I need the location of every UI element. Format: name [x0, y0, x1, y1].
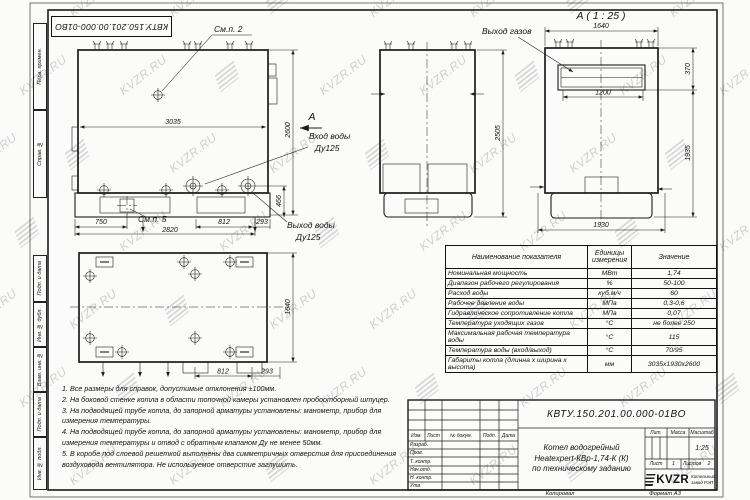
section-arrow-label: А — [307, 111, 315, 123]
outlet-label: Ду125 — [295, 232, 321, 242]
table-row: Температура уходящих газов°Сне более 250 — [446, 319, 717, 329]
dimension-label: 2820 — [161, 227, 178, 234]
dimension-label: 812 — [218, 219, 230, 226]
tb-sheet-value: 1 — [666, 459, 681, 469]
margin-box-perv-primen: Перв. примен. — [33, 23, 47, 110]
inlet-label: Ду125 — [314, 143, 340, 153]
scale-value: 1:25 — [689, 437, 715, 459]
margin-box-podp-data-1: Подп. и дата — [33, 255, 47, 302]
view-title: А ( 1 : 25 ) — [575, 10, 625, 22]
copied-label: Копировал — [520, 491, 600, 497]
product-name: Котел водогрейный Heatexpert-КВр-1,74-К … — [520, 429, 643, 489]
tb-mass-label: Масса — [667, 428, 689, 437]
tb-sheets-label: Листов — [681, 459, 703, 469]
callout-label: См.п. 5 — [138, 214, 167, 224]
margin-box-sprav-no: Справ. № — [33, 110, 47, 198]
plan-view: 1640 812 293 — [70, 253, 297, 379]
tb-row-prov: Пров. — [410, 449, 442, 457]
tb-row-nkontr: Н. контр. — [410, 474, 442, 482]
margin-box-inv-dubl: Инв. № дубл. — [33, 302, 47, 347]
dimension-label: 3035 — [165, 119, 181, 126]
margin-box-podp-data-2: Подп. и дата — [33, 392, 47, 437]
inlet-label: Вход воды — [309, 131, 351, 141]
tb-col-izm: Изм. — [408, 430, 425, 441]
company-cell: KVZR Котельный завод РЭП — [645, 469, 715, 490]
notes-block: 1. Все размеры для справок, допустимые о… — [62, 384, 406, 490]
tb-col-dokum: № докум. — [442, 430, 480, 441]
spec-col-value: Значение — [632, 246, 717, 269]
kvzr-logo-icon — [645, 474, 656, 486]
tb-row-nachotd: Нач.отд. — [410, 466, 442, 474]
tb-sheet-label: Лист — [646, 459, 666, 469]
tb-sheets-value: 2 — [703, 459, 715, 469]
callout-label: См.п. 2 — [214, 24, 243, 34]
dimension-label: 1640 — [593, 23, 609, 30]
dimension-label: 466 — [276, 195, 283, 207]
tb-lit-label: Лит. — [645, 428, 667, 437]
dimension-label: 370 — [685, 63, 692, 75]
dimension-label: 2505 — [495, 125, 502, 142]
dimension-label: 2600 — [285, 122, 292, 139]
table-row: Габариты котла (длинна х ширина х высота… — [446, 356, 717, 373]
tb-scale-label: Масштаб — [689, 428, 715, 437]
doc-number: КВТУ.150.201.00.000-01ВО — [518, 400, 715, 428]
note-line: 2. На боковой стенке котла в области топ… — [62, 395, 406, 406]
dimension-label: 1935 — [685, 145, 692, 161]
margin-box-inv-podl: Инв. № подл. — [33, 437, 47, 490]
table-row: Номинальная мощностьМВт1,74 — [446, 269, 717, 279]
spec-col-units: Единицы измерения — [588, 246, 632, 269]
note-line: 5. В коробе под слоевой решеткой выполне… — [62, 449, 406, 471]
spec-col-name: Наименование показателя — [446, 246, 588, 269]
drawing-sheet: KVZR.RUKVZR.RUKVZR.RUKVZR.RUKVZR.RUKVZR.… — [0, 0, 750, 500]
dimension-label: 812 — [217, 369, 229, 376]
anchor-tick-icon — [93, 41, 101, 50]
dimension-label: 293 — [260, 369, 273, 376]
tb-row-razrab: Разраб. — [410, 441, 442, 449]
dimension-label: 293 — [255, 219, 268, 226]
table-row: Температура воды (вход/выход)°С70/95 — [446, 346, 717, 356]
dimension-label: 1200 — [595, 90, 611, 97]
table-row: Максимальная рабочая температура воды°С1… — [446, 329, 717, 346]
outlet-label: Выход воды — [287, 220, 336, 230]
tb-col-list: Лист — [425, 430, 442, 441]
gas-outlet-label: Выход газов — [482, 26, 532, 36]
view-a: А ( 1 : 25 ) 1640 Выход газов 1200 370 — [482, 10, 697, 233]
dimension-label: 750 — [95, 219, 107, 226]
tb-row-tkontr: Т. контр. — [410, 457, 442, 466]
margin-box-vzam-inv: Взам. инв. № — [33, 347, 47, 392]
doc-number-stamp: КВТУ.150.201.00.000-01ВО — [51, 16, 172, 37]
table-row: Диапазон рабочего регулирования%50-100 — [446, 279, 717, 289]
side-view: 2505 — [371, 41, 507, 228]
note-line: 1. Все размеры для справок, допустимые о… — [62, 384, 406, 395]
tb-col-data: Дата — [499, 430, 518, 441]
note-line: 4. На подводящей трубе котла, до запорно… — [62, 427, 406, 449]
tb-row-utv: Утв. — [410, 482, 442, 490]
dimension-label: 1930 — [593, 222, 609, 229]
dimension-label: 1640 — [285, 299, 292, 315]
format-label: Формат А3 — [625, 491, 705, 497]
spec-table: Наименование показателя Единицы измерени… — [445, 245, 716, 373]
table-row: Гидравлическое сопротивление котлаМПа0,0… — [446, 309, 717, 319]
front-view: См.п. 2 3035 2600 А Вход воды Ду125 Выхо… — [72, 24, 351, 242]
table-row: Расход водыкуб.м/ч60 — [446, 289, 717, 299]
company-logo-text: KVZR — [656, 474, 689, 486]
tb-col-podp: Подп. — [480, 430, 499, 441]
table-row: Рабочее давление водыМПа0,3-0,6 — [446, 299, 717, 309]
note-line: 3. На подводящей трубе котла, до запорно… — [62, 406, 406, 428]
company-tagline: Котельный завод РЭП — [691, 474, 715, 485]
